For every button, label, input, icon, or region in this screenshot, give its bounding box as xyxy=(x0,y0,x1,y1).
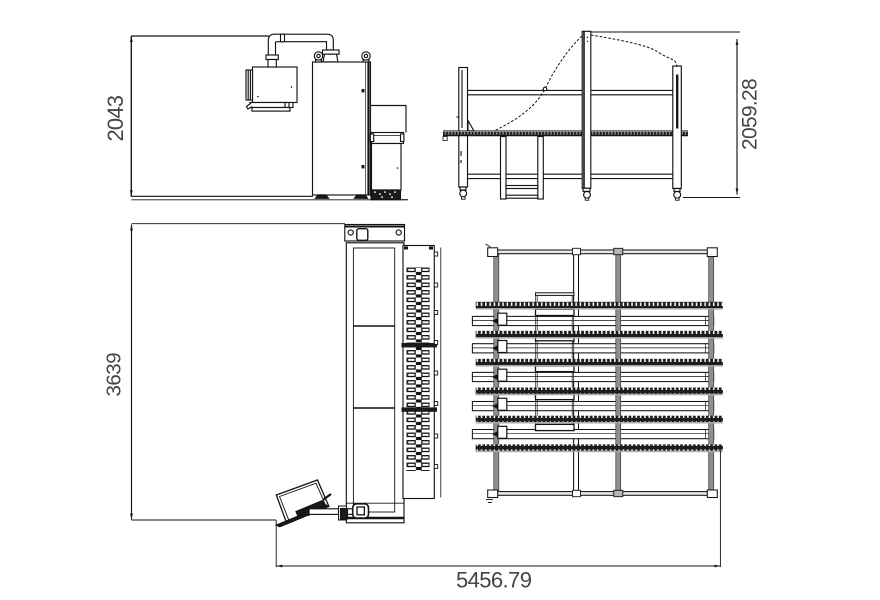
svg-text:2043: 2043 xyxy=(103,95,128,141)
svg-text:3639: 3639 xyxy=(103,353,126,397)
svg-text:2059.28: 2059.28 xyxy=(739,79,762,150)
svg-text:5456.79: 5456.79 xyxy=(456,568,532,593)
